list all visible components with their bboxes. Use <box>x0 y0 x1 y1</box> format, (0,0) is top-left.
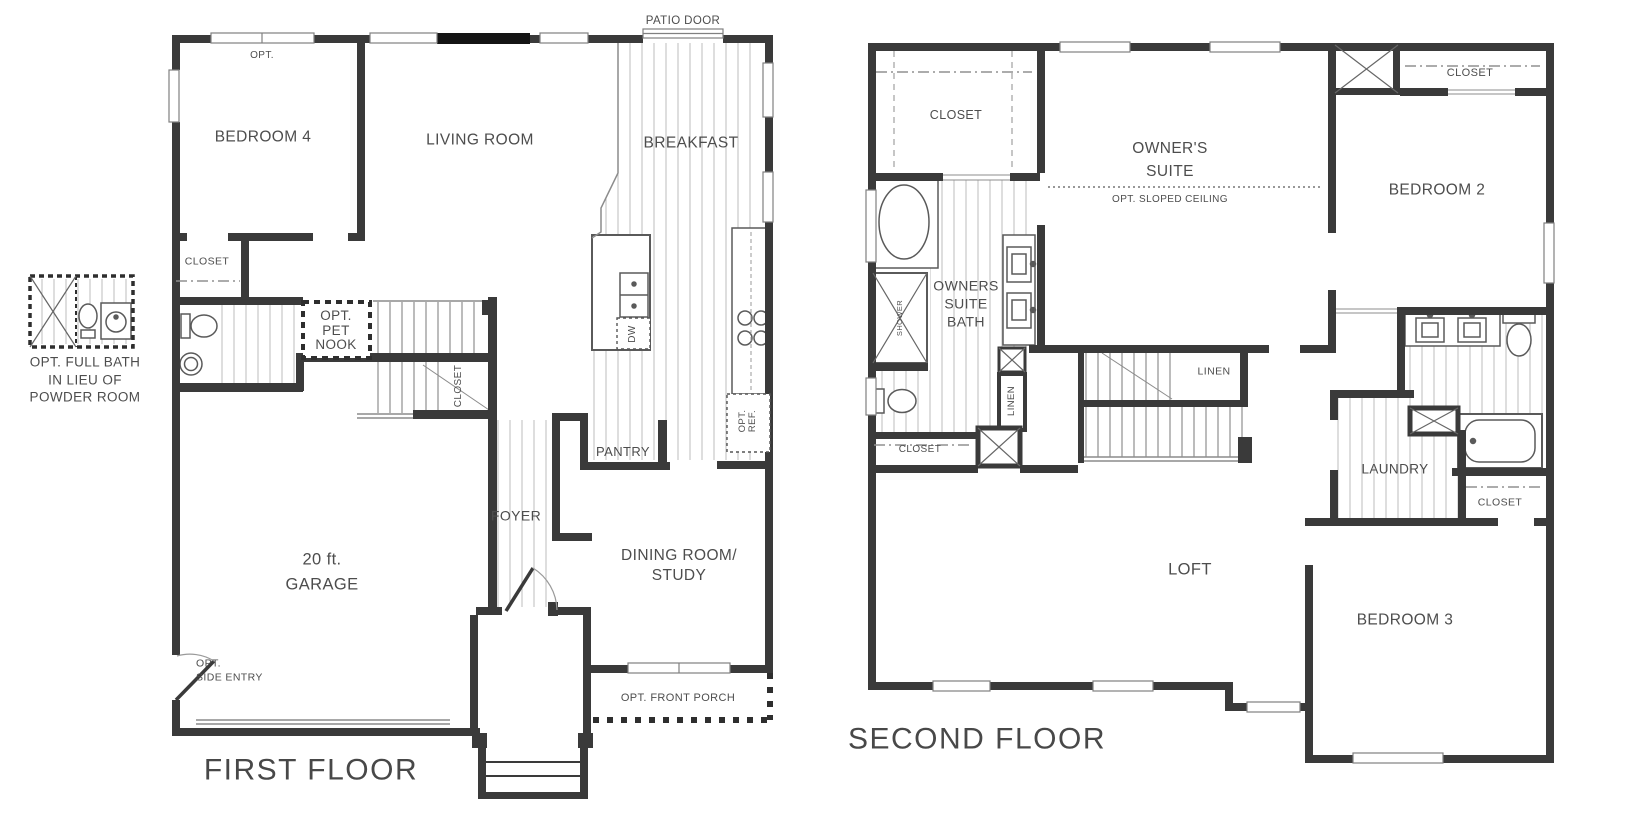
opt-fridge-label: OPT. REF. <box>738 410 759 433</box>
closet-owners-label: CLOSET <box>930 108 982 124</box>
linen-hall-label: LINEN <box>1198 365 1231 378</box>
pet-nook-label: OPT. PET NOOK <box>315 309 356 353</box>
bedroom3-label: BEDROOM 3 <box>1357 610 1454 629</box>
pantry-label: PANTRY <box>596 444 650 460</box>
owners-suite-bath-label: OWNERS SUITE BATH <box>933 277 998 332</box>
first-floor-title: FIRST FLOOR <box>204 751 418 789</box>
bedroom4-label: BEDROOM 4 <box>215 127 312 146</box>
closet-bedroom2-label: CLOSET <box>1447 67 1493 81</box>
owners-suite-label: OWNER'S SUITE <box>1132 137 1208 184</box>
patio-door-label: PATIO DOOR <box>646 14 721 28</box>
closet-owners-bath-label: CLOSET <box>899 444 941 457</box>
sloped-ceiling-label: OPT. SLOPED CEILING <box>1112 194 1228 207</box>
living-room-label: LIVING ROOM <box>426 130 534 149</box>
second-floor-title: SECOND FLOOR <box>848 720 1106 758</box>
front-porch-label: OPT. FRONT PORCH <box>621 692 735 706</box>
side-entry-label: OPT. SIDE ENTRY <box>196 657 263 684</box>
garage-label: 20 ft. GARAGE <box>285 547 358 597</box>
floorplan-drawing <box>0 0 1630 822</box>
option-callout: OPT. FULL BATH IN LIEU OF POWDER ROOM <box>30 354 141 407</box>
loft-label: LOFT <box>1168 560 1212 581</box>
opt-window-label: OPT. <box>250 50 274 63</box>
bedroom2-label: BEDROOM 2 <box>1389 180 1486 199</box>
closet-hall-bath-label: CLOSET <box>1478 496 1522 509</box>
dining-study-label: DINING ROOM/ STUDY <box>621 546 737 586</box>
floorplan-canvas: PATIO DOOR OPT. BEDROOM 4 LIVING ROOM BR… <box>0 0 1630 822</box>
linen-stairs-label: LINEN <box>1007 386 1017 416</box>
breakfast-label: BREAKFAST <box>644 133 739 152</box>
dishwasher-label: DW <box>628 325 639 342</box>
shower-label: SHOWER <box>896 300 904 336</box>
foyer-label: FOYER <box>491 507 541 525</box>
closet-bedroom4-label: CLOSET <box>185 255 229 268</box>
closet-under-stairs-label: CLOSET <box>454 365 465 407</box>
laundry-label: LAUNDRY <box>1361 462 1428 479</box>
